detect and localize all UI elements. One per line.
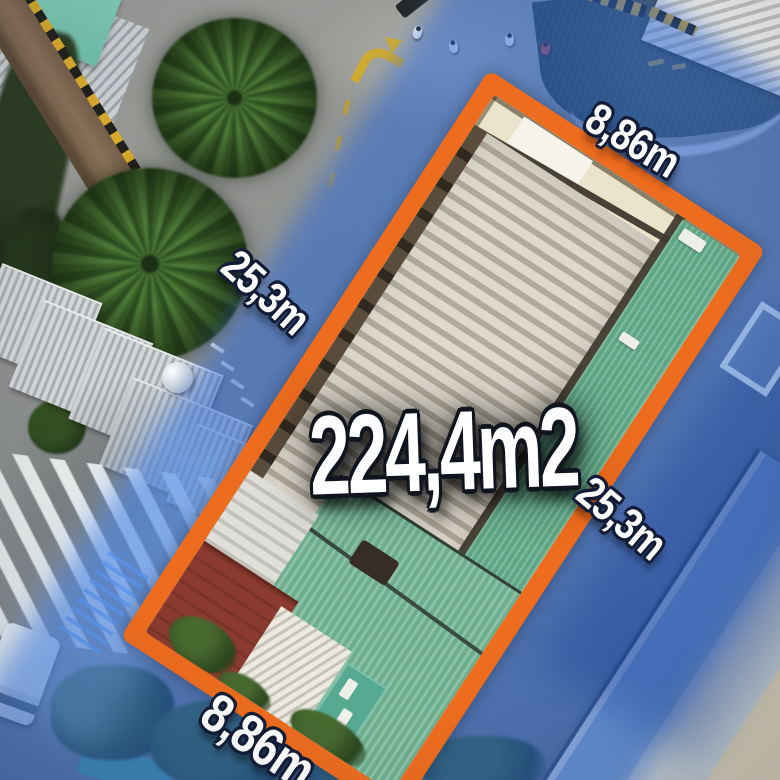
area-label: 224,4m2	[307, 391, 554, 512]
palm-tree	[152, 18, 317, 178]
aerial-photo-scene: 8,86m 25,3m 224,4m2 25,3m 8,86m	[0, 0, 780, 780]
